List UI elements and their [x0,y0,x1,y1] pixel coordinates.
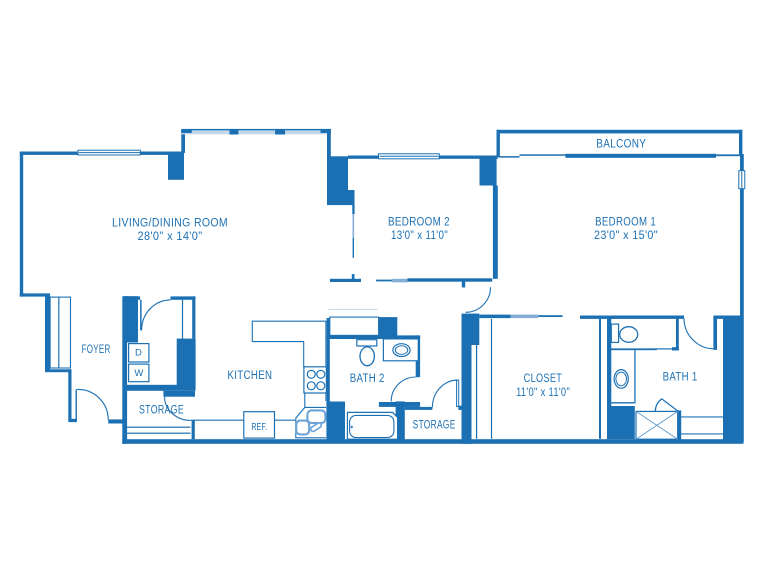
svg-text:CLOSET: CLOSET [524,373,563,385]
svg-text:LIVING/DINING ROOM: LIVING/DINING ROOM [112,218,228,230]
svg-text:23'0" x 15'0": 23'0" x 15'0" [594,230,658,242]
svg-text:BALCONY: BALCONY [596,139,646,151]
svg-text:KITCHEN: KITCHEN [227,370,272,382]
svg-text:BATH 1: BATH 1 [663,372,698,384]
svg-text:FOYER: FOYER [82,344,111,356]
svg-text:BEDROOM 2: BEDROOM 2 [388,216,450,228]
svg-text:BEDROOM 1: BEDROOM 1 [595,216,656,228]
svg-text:STORAGE: STORAGE [139,404,184,416]
svg-text:BATH 2: BATH 2 [350,373,385,385]
svg-text:REF.: REF. [251,422,267,433]
svg-text:13'0" x 11'0": 13'0" x 11'0" [391,230,448,242]
svg-text:W: W [134,368,143,379]
svg-text:11'0" x 11'0": 11'0" x 11'0" [516,387,570,399]
svg-text:D: D [135,348,142,359]
svg-text:STORAGE: STORAGE [413,419,456,431]
svg-text:28'0" x 14'0": 28'0" x 14'0" [138,231,203,243]
